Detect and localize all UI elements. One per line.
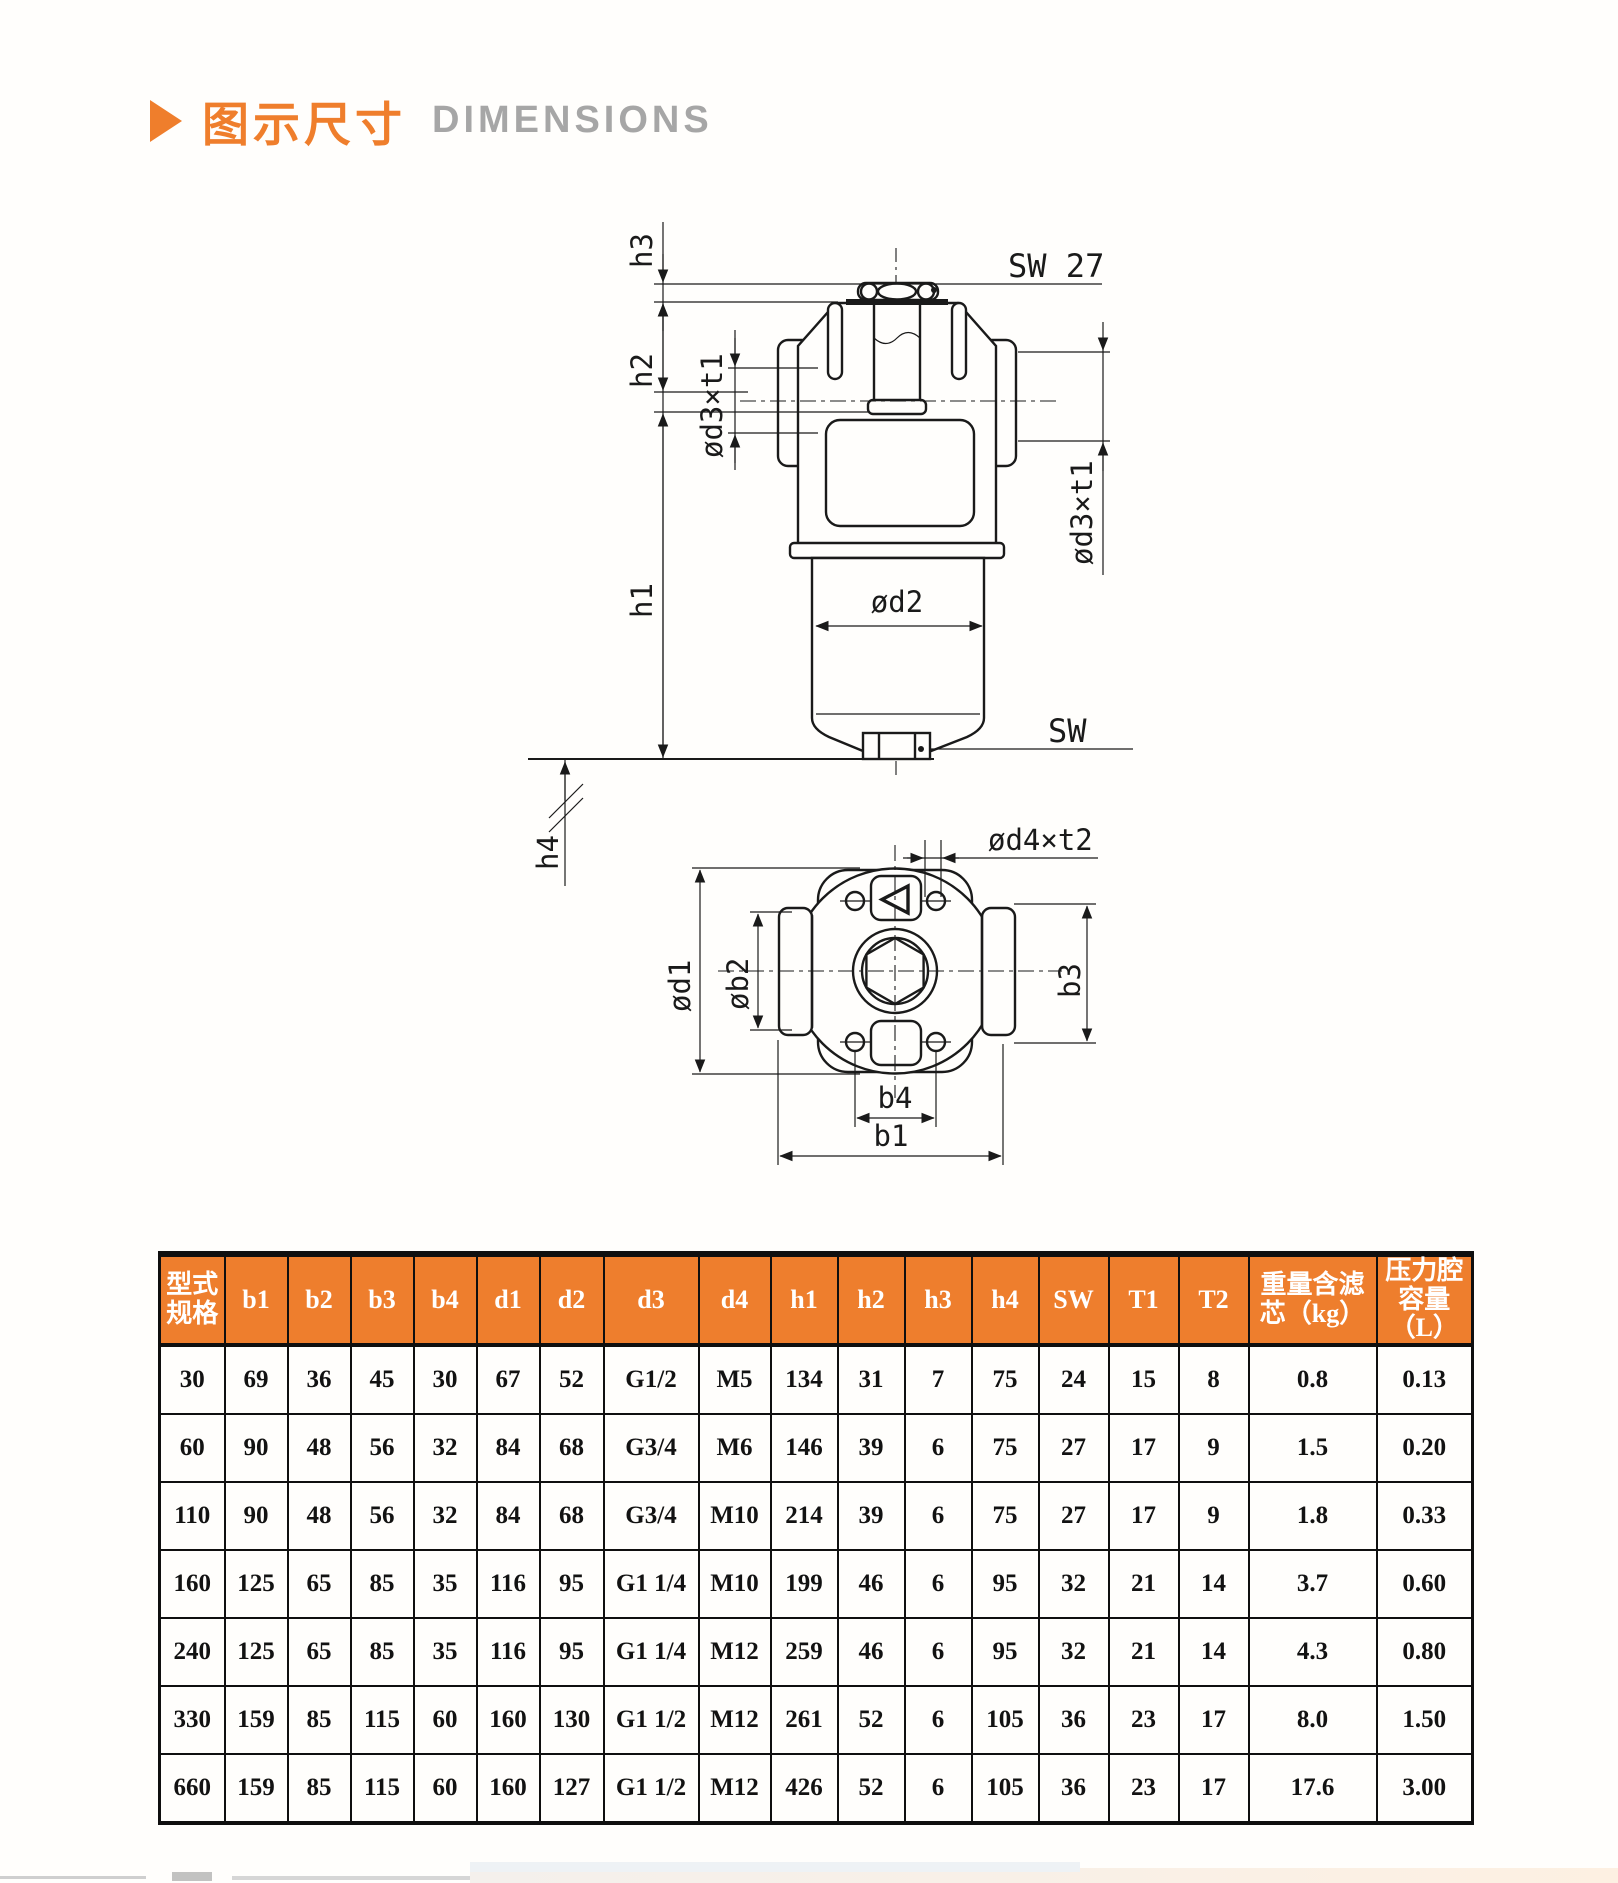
table-cell: 32 — [414, 1482, 477, 1550]
scan-edge-strip-blue — [470, 1862, 1080, 1872]
column-header: 型式规格 — [160, 1254, 225, 1345]
table-cell: 15 — [1109, 1345, 1179, 1414]
table-cell: 31 — [838, 1345, 905, 1414]
catalog-page: 图示尺寸 DIMENSIONS — [0, 0, 1618, 1883]
scan-artifact — [232, 1876, 470, 1880]
table-row: 110904856328468G3/4M1021439675271791.80.… — [160, 1482, 1473, 1550]
table-cell: 68 — [540, 1414, 604, 1482]
column-header: h2 — [838, 1254, 905, 1345]
table-cell: 1.5 — [1249, 1414, 1377, 1482]
bottom-plug — [863, 733, 930, 759]
table-cell: 0.60 — [1377, 1550, 1473, 1618]
dim-label-sw27: SW 27 — [1008, 247, 1104, 285]
dim-label-b4: b4 — [878, 1081, 913, 1115]
table-row: 3301598511560160130G1 1/2M12261526105362… — [160, 1686, 1473, 1754]
table-cell: 60 — [414, 1754, 477, 1823]
dim-label-b1: b1 — [874, 1119, 909, 1153]
table-cell: 84 — [477, 1482, 540, 1550]
table-cell: 116 — [477, 1550, 540, 1618]
table-cell: 52 — [838, 1754, 905, 1823]
table-cell: 27 — [1039, 1414, 1109, 1482]
table-cell: 32 — [414, 1414, 477, 1482]
bottom-view: ød4×t2 ød1 øb2 b3 b4 b1 — [663, 823, 1098, 1165]
table-cell: 39 — [838, 1482, 905, 1550]
table-cell: 199 — [771, 1550, 838, 1618]
table-cell: 160 — [477, 1754, 540, 1823]
orange-arrow-icon — [150, 100, 182, 142]
table-cell: 6 — [905, 1686, 972, 1754]
dim-label-od4t2: ød4×t2 — [988, 823, 1093, 857]
table-row: 24012565853511695G1 1/4M1225946695322114… — [160, 1618, 1473, 1686]
table-cell: 60 — [414, 1686, 477, 1754]
table-cell: 21 — [1109, 1550, 1179, 1618]
column-header: h1 — [771, 1254, 838, 1345]
table-cell: 125 — [225, 1618, 288, 1686]
table-cell: 6 — [905, 1414, 972, 1482]
table-cell: G1 1/4 — [604, 1550, 699, 1618]
column-header: b2 — [288, 1254, 351, 1345]
table-row: 30693645306752G1/2M513431775241580.80.13 — [160, 1345, 1473, 1414]
table-cell: 146 — [771, 1414, 838, 1482]
table-cell: 36 — [288, 1345, 351, 1414]
table-cell: 23 — [1109, 1686, 1179, 1754]
table-cell: 110 — [160, 1482, 225, 1550]
table-cell: 127 — [540, 1754, 604, 1823]
table-cell: 8 — [1179, 1345, 1249, 1414]
dim-label-od3t1-left: ød3×t1 — [695, 353, 729, 458]
dim-label-ob2: øb2 — [721, 958, 755, 1010]
table-cell: 17 — [1179, 1754, 1249, 1823]
table-cell: 52 — [540, 1345, 604, 1414]
table-cell: 14 — [1179, 1550, 1249, 1618]
table-cell: 84 — [477, 1414, 540, 1482]
top-hex-nut — [846, 283, 948, 305]
table-cell: 1.8 — [1249, 1482, 1377, 1550]
table-cell: 48 — [288, 1482, 351, 1550]
table-cell: 6 — [905, 1482, 972, 1550]
table-cell: 60 — [160, 1414, 225, 1482]
column-header: d3 — [604, 1254, 699, 1345]
table-cell: 46 — [838, 1550, 905, 1618]
table-cell: 3.7 — [1249, 1550, 1377, 1618]
table-cell: 85 — [351, 1618, 414, 1686]
table-cell: 105 — [972, 1754, 1039, 1823]
table-cell: 7 — [905, 1345, 972, 1414]
table-cell: 75 — [972, 1414, 1039, 1482]
table-cell: M6 — [699, 1414, 771, 1482]
column-header: b3 — [351, 1254, 414, 1345]
table-cell: 56 — [351, 1414, 414, 1482]
table-cell: 69 — [225, 1345, 288, 1414]
table-cell: 17 — [1109, 1414, 1179, 1482]
column-header: SW — [1039, 1254, 1109, 1345]
dim-label-od3t1-right: ød3×t1 — [1065, 460, 1099, 565]
table-cell: 46 — [838, 1618, 905, 1686]
table-cell: 85 — [351, 1550, 414, 1618]
table-cell: 8.0 — [1249, 1686, 1377, 1754]
table-cell: 9 — [1179, 1414, 1249, 1482]
column-header: 压力腔容量（L） — [1377, 1254, 1473, 1345]
table-cell: M12 — [699, 1686, 771, 1754]
table-cell: 21 — [1109, 1618, 1179, 1686]
table-cell: 95 — [972, 1550, 1039, 1618]
table-cell: 660 — [160, 1754, 225, 1823]
table-cell: 67 — [477, 1345, 540, 1414]
table-cell: 0.80 — [1377, 1618, 1473, 1686]
table-cell: 160 — [477, 1686, 540, 1754]
table-cell: 75 — [972, 1482, 1039, 1550]
column-header: b1 — [225, 1254, 288, 1345]
table-cell: 36 — [1039, 1754, 1109, 1823]
table-cell: M10 — [699, 1482, 771, 1550]
table-cell: 159 — [225, 1754, 288, 1823]
column-header: h4 — [972, 1254, 1039, 1345]
table-cell: 3.00 — [1377, 1754, 1473, 1823]
scan-artifact — [0, 1876, 146, 1879]
table-cell: 6 — [905, 1618, 972, 1686]
table-cell: 160 — [160, 1550, 225, 1618]
table-cell: 35 — [414, 1550, 477, 1618]
page-title-zh: 图示尺寸 — [202, 86, 406, 155]
table-cell: 159 — [225, 1686, 288, 1754]
table-cell: G3/4 — [604, 1414, 699, 1482]
table-row: 6601598511560160127G1 1/2M12426526105362… — [160, 1754, 1473, 1823]
table-cell: 426 — [771, 1754, 838, 1823]
table-cell: 259 — [771, 1618, 838, 1686]
column-header: T2 — [1179, 1254, 1249, 1345]
table-cell: 85 — [288, 1754, 351, 1823]
table-cell: 32 — [1039, 1550, 1109, 1618]
table-cell: 30 — [414, 1345, 477, 1414]
table-cell: 6 — [905, 1550, 972, 1618]
dimensions-table: 型式规格b1b2b3b4d1d2d3d4h1h2h3h4SWT1T2重量含滤芯（… — [158, 1251, 1474, 1825]
table-cell: 105 — [972, 1686, 1039, 1754]
table-cell: M10 — [699, 1550, 771, 1618]
column-header: d2 — [540, 1254, 604, 1345]
table-cell: 68 — [540, 1482, 604, 1550]
table-cell: 0.8 — [1249, 1345, 1377, 1414]
page-header: 图示尺寸 DIMENSIONS — [150, 86, 713, 155]
column-header: 重量含滤芯（kg） — [1249, 1254, 1377, 1345]
table-cell: 48 — [288, 1414, 351, 1482]
dim-label-b3: b3 — [1053, 963, 1087, 998]
table-row: 60904856328468G3/4M614639675271791.50.20 — [160, 1414, 1473, 1482]
table-cell: 14 — [1179, 1618, 1249, 1686]
dim-label-h1: h1 — [625, 583, 659, 618]
table-cell: 95 — [540, 1550, 604, 1618]
table-cell: 115 — [351, 1686, 414, 1754]
table-cell: 0.33 — [1377, 1482, 1473, 1550]
table-cell: 36 — [1039, 1686, 1109, 1754]
front-view: h3 h2 h1 ød3×t1 ød3×t1 ød2 SW 27 S — [528, 222, 1133, 886]
table-cell: 52 — [838, 1686, 905, 1754]
column-header: h3 — [905, 1254, 972, 1345]
table-cell: 23 — [1109, 1754, 1179, 1823]
table-cell: 32 — [1039, 1618, 1109, 1686]
table-header-row: 型式规格b1b2b3b4d1d2d3d4h1h2h3h4SWT1T2重量含滤芯（… — [160, 1254, 1473, 1345]
column-header: T1 — [1109, 1254, 1179, 1345]
table-cell: M12 — [699, 1754, 771, 1823]
table-cell: 35 — [414, 1618, 477, 1686]
table-cell: 115 — [351, 1754, 414, 1823]
table-cell: G3/4 — [604, 1482, 699, 1550]
table-cell: 125 — [225, 1550, 288, 1618]
table-cell: 0.20 — [1377, 1414, 1473, 1482]
table-cell: 65 — [288, 1618, 351, 1686]
table-cell: M12 — [699, 1618, 771, 1686]
table-cell: 95 — [540, 1618, 604, 1686]
table-cell: 330 — [160, 1686, 225, 1754]
table-cell: 130 — [540, 1686, 604, 1754]
table-cell: 90 — [225, 1414, 288, 1482]
table-cell: 39 — [838, 1414, 905, 1482]
table-cell: 1.50 — [1377, 1686, 1473, 1754]
table-cell: 56 — [351, 1482, 414, 1550]
table-cell: 17 — [1109, 1482, 1179, 1550]
table-cell: 116 — [477, 1618, 540, 1686]
table-cell: 6 — [905, 1754, 972, 1823]
table-cell: G1/2 — [604, 1345, 699, 1414]
technical-drawing: h3 h2 h1 ød3×t1 ød3×t1 ød2 SW 27 S — [440, 180, 1200, 1210]
table-cell: G1 1/2 — [604, 1754, 699, 1823]
dim-label-od1: ød1 — [663, 960, 697, 1012]
column-header: d4 — [699, 1254, 771, 1345]
column-header: d1 — [477, 1254, 540, 1345]
dim-label-sw: SW — [1048, 712, 1087, 750]
dimensions-table-wrap: 型式规格b1b2b3b4d1d2d3d4h1h2h3h4SWT1T2重量含滤芯（… — [158, 1251, 1474, 1825]
table-cell: 17 — [1179, 1686, 1249, 1754]
page-title-en: DIMENSIONS — [432, 99, 713, 142]
table-cell: 45 — [351, 1345, 414, 1414]
dim-label-h4: h4 — [531, 835, 565, 870]
table-cell: G1 1/2 — [604, 1686, 699, 1754]
table-cell: 24 — [1039, 1345, 1109, 1414]
table-cell: 134 — [771, 1345, 838, 1414]
table-cell: 214 — [771, 1482, 838, 1550]
dim-label-od2: ød2 — [871, 585, 923, 619]
table-cell: G1 1/4 — [604, 1618, 699, 1686]
center-spigot — [874, 297, 920, 403]
table-cell: 27 — [1039, 1482, 1109, 1550]
table-cell: M5 — [699, 1345, 771, 1414]
table-cell: 17.6 — [1249, 1754, 1377, 1823]
table-cell: 4.3 — [1249, 1618, 1377, 1686]
table-cell: 30 — [160, 1345, 225, 1414]
table-cell: 9 — [1179, 1482, 1249, 1550]
table-cell: 75 — [972, 1345, 1039, 1414]
table-cell: 95 — [972, 1618, 1039, 1686]
scan-artifact — [172, 1872, 212, 1881]
table-cell: 261 — [771, 1686, 838, 1754]
table-cell: 90 — [225, 1482, 288, 1550]
column-header: b4 — [414, 1254, 477, 1345]
table-cell: 85 — [288, 1686, 351, 1754]
table-row: 16012565853511695G1 1/4M1019946695322114… — [160, 1550, 1473, 1618]
table-cell: 240 — [160, 1618, 225, 1686]
table-cell: 0.13 — [1377, 1345, 1473, 1414]
table-cell: 65 — [288, 1550, 351, 1618]
dim-label-h3: h3 — [625, 233, 659, 268]
dim-label-h2: h2 — [625, 353, 659, 388]
